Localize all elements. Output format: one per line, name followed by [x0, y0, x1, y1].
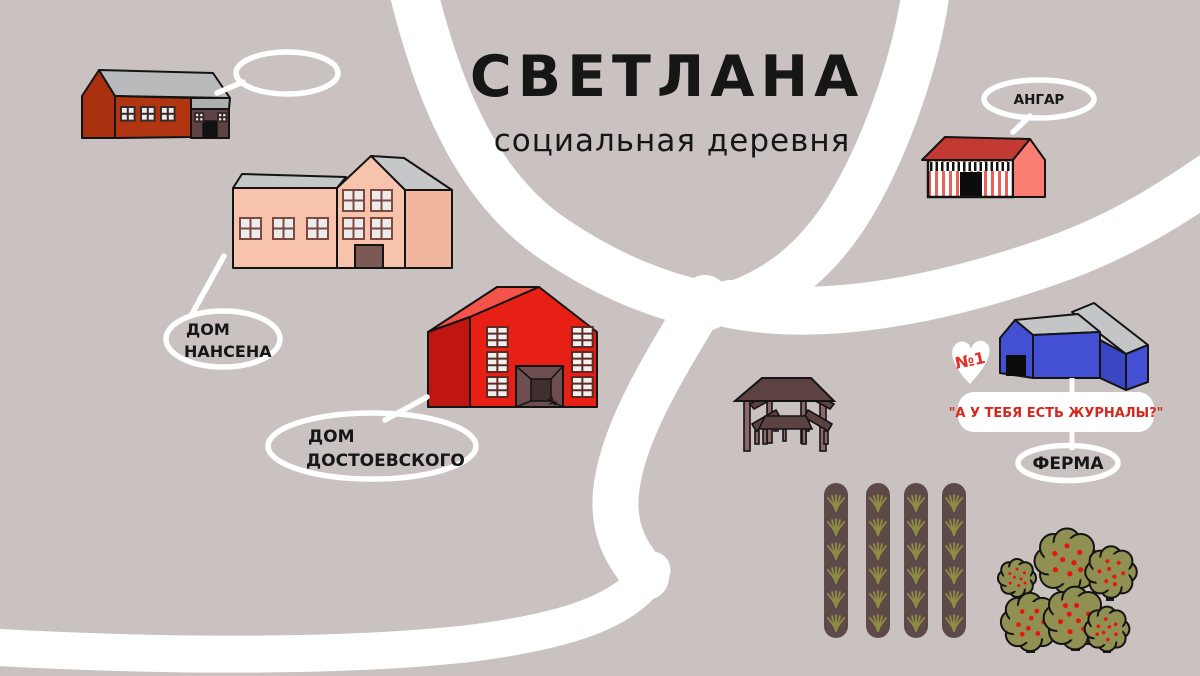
pavilion	[735, 378, 834, 451]
nansen-label-line2: НАНСЕНА	[184, 342, 272, 361]
nansen-label-line1: ДОМ	[186, 320, 230, 339]
farm-door	[1006, 355, 1026, 376]
hangar-roof	[922, 137, 1030, 160]
farm-quote-label: "А У ТЕБЯ ЕСТЬ ЖУРНАЛЫ?"	[949, 406, 1164, 421]
orchard-trees	[998, 529, 1137, 653]
nansen-house-roof	[233, 174, 346, 188]
nansen-label-bubble: ДОМ НАНСЕНА	[166, 256, 280, 367]
apple-tree	[1085, 546, 1137, 598]
hangar-label-bubble: АНГАР	[984, 80, 1094, 132]
apple-tree	[998, 559, 1036, 597]
hangar-building	[922, 137, 1045, 197]
farm-number-badge: №1	[952, 341, 989, 384]
dostoevsky-label-bubble: ДОМ ДОСТОЕВСКОГО	[268, 397, 476, 479]
map-subtitle: социальная деревня	[494, 123, 851, 159]
dostoevsky-house-entry	[516, 366, 563, 407]
map-title: СВЕТЛАНА	[470, 44, 864, 110]
nansen-house-door	[355, 245, 383, 268]
picnic-table	[759, 416, 812, 429]
hangar-door	[960, 172, 982, 197]
dostoevsky-house-building	[428, 287, 597, 407]
farm-label-bubble: ФЕРМА	[1018, 446, 1118, 481]
map-svg: ДОМ НАНСЕНА ДОМ ДОСТОЕВСКОГО	[0, 0, 1200, 676]
village-map: ДОМ НАНСЕНА ДОМ ДОСТОЕВСКОГО	[0, 0, 1200, 676]
grass-tufts	[828, 495, 962, 631]
farm-building	[1000, 303, 1148, 390]
road-south	[615, 298, 705, 577]
garden-beds	[824, 483, 966, 638]
dostoevsky-label-line2: ДОСТОЕВСКОГО	[306, 451, 465, 471]
pavilion-canopy	[735, 378, 834, 401]
road-bottom	[0, 570, 652, 654]
red-barn-roof	[99, 70, 230, 98]
apple-tree	[1085, 607, 1130, 652]
red-barn-building	[82, 70, 230, 138]
hangar-label: АНГАР	[1014, 92, 1065, 108]
dostoevsky-label-line1: ДОМ	[308, 427, 355, 447]
red-barn-door	[203, 121, 217, 138]
empty-bubble	[217, 52, 338, 94]
dostoevsky-house-door	[531, 379, 551, 401]
farm-label: ФЕРМА	[1032, 454, 1104, 474]
nansen-house-building	[233, 156, 452, 268]
